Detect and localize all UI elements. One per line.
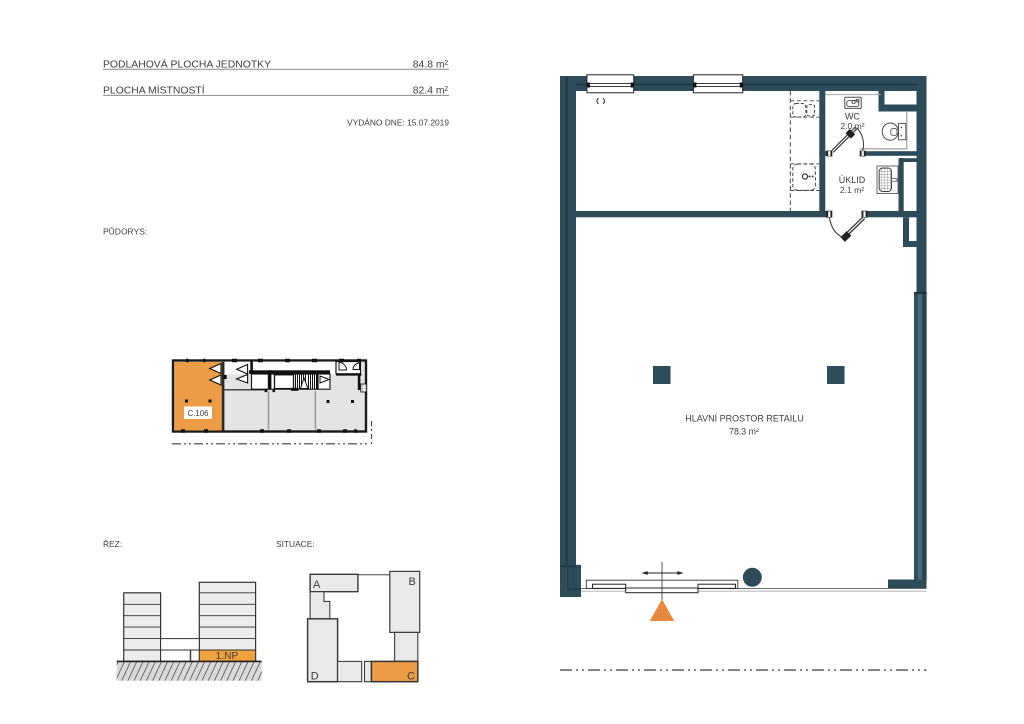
svg-text:2.0 m²: 2.0 m² bbox=[840, 121, 864, 131]
svg-text:A: A bbox=[313, 579, 321, 591]
svg-text:B: B bbox=[409, 576, 416, 588]
svg-text:SITUACE:: SITUACE: bbox=[276, 539, 315, 549]
svg-text:2.1 m²: 2.1 m² bbox=[840, 185, 864, 195]
svg-text:C.106: C.106 bbox=[188, 409, 209, 418]
svg-text:ÚKLID: ÚKLID bbox=[839, 175, 866, 185]
svg-text:PLOCHA MÍSTNOSTÍ: PLOCHA MÍSTNOSTÍ bbox=[103, 84, 205, 97]
svg-text:VYDÁNO DNE: 15.07.2019: VYDÁNO DNE: 15.07.2019 bbox=[347, 118, 449, 128]
svg-text:78.3 m²: 78.3 m² bbox=[729, 427, 759, 437]
svg-text:WC: WC bbox=[845, 111, 860, 121]
svg-text:PODLAHOVÁ PLOCHA JEDNOTKY: PODLAHOVÁ PLOCHA JEDNOTKY bbox=[103, 58, 271, 71]
svg-text:1.NP: 1.NP bbox=[216, 651, 239, 662]
svg-text:D: D bbox=[311, 671, 319, 683]
svg-text:C: C bbox=[407, 671, 415, 683]
svg-text:PŮDORYS:: PŮDORYS: bbox=[103, 226, 147, 237]
svg-text:ŘEZ:: ŘEZ: bbox=[103, 539, 122, 549]
svg-text:HLAVNÍ PROSTOR RETAILU: HLAVNÍ PROSTOR RETAILU bbox=[685, 414, 804, 424]
